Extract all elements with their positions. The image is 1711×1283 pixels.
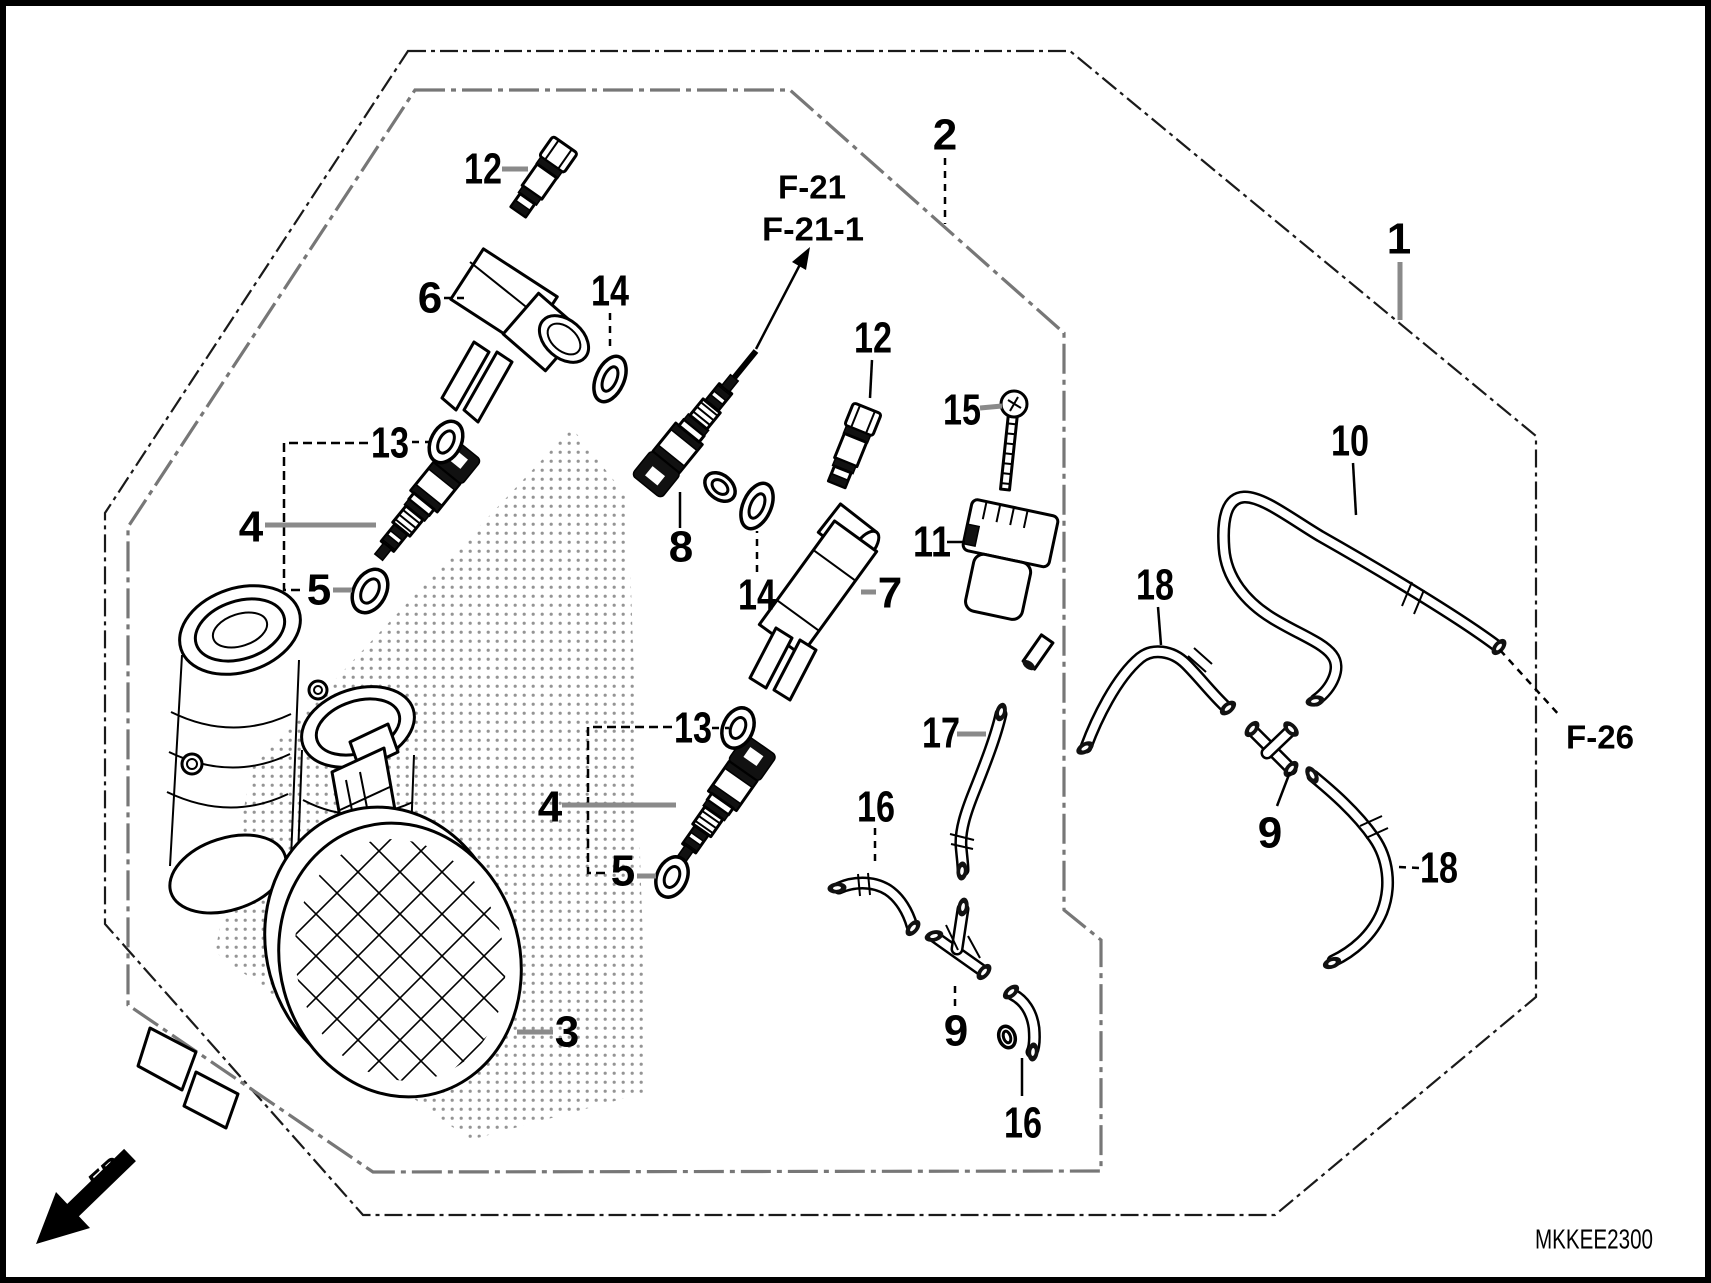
callout-18-right: 18 [1420, 844, 1458, 893]
callout-15: 15 [943, 386, 981, 435]
callout-5-upper: 5 [307, 566, 331, 615]
callout-12-mid: 12 [854, 314, 892, 363]
callout-16-bottom: 16 [1004, 1099, 1042, 1148]
parts-diagram-page: FR. MKKEE2300 12614211215117148134513453… [0, 0, 1711, 1283]
callout-9-bottom: 9 [944, 1007, 968, 1056]
callout-4-upper: 4 [239, 503, 264, 552]
callout-15-leader [980, 406, 1002, 408]
ref-f21-1: F-21-1 [762, 211, 864, 248]
diagram-code: MKKEE2300 [1535, 1224, 1653, 1255]
callout-18-left: 18 [1136, 561, 1174, 610]
callout-14-top: 14 [591, 267, 629, 316]
ref-f26: F-26 [1566, 719, 1634, 756]
callout-11: 11 [913, 518, 951, 567]
callout-4-lower: 4 [538, 783, 563, 832]
callout-8: 8 [669, 523, 693, 572]
callout-3: 3 [555, 1008, 579, 1057]
callout-17: 17 [922, 709, 960, 758]
callout-5-lower: 5 [611, 847, 635, 896]
callout-6: 6 [418, 274, 442, 323]
callout-14-mid: 14 [738, 571, 776, 620]
callout-13-lower: 13 [674, 704, 712, 753]
callout-12-top: 12 [464, 145, 502, 194]
ref-f21: F-21 [778, 169, 846, 206]
callout-2: 2 [933, 111, 957, 160]
callout-1: 1 [1387, 215, 1411, 264]
callout-10: 10 [1331, 417, 1369, 466]
callout-9-right: 9 [1258, 809, 1282, 858]
callout-7: 7 [878, 569, 902, 618]
parts-diagram: FR. MKKEE2300 12614211215117148134513453… [0, 0, 1711, 1283]
callout-13-upper: 13 [371, 419, 409, 468]
callout-16-left: 16 [857, 783, 895, 832]
